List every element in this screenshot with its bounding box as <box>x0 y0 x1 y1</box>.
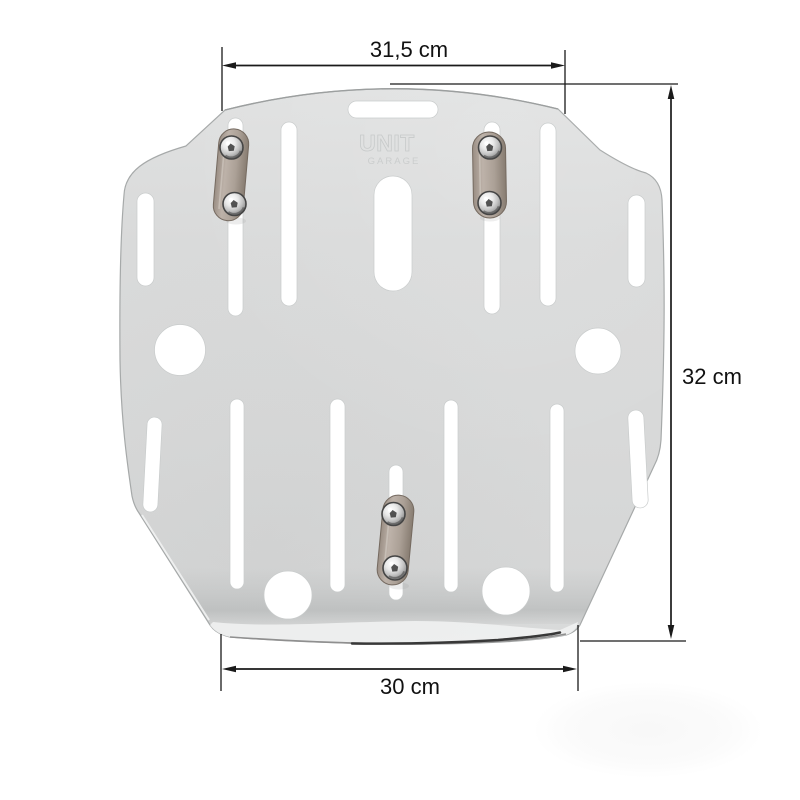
svg-text:31,5 cm: 31,5 cm <box>370 37 448 62</box>
svg-text:UNIT: UNIT <box>359 130 415 156</box>
svg-text:GARAGE: GARAGE <box>368 156 421 167</box>
svg-text:30 cm: 30 cm <box>380 674 440 699</box>
svg-text:32 cm: 32 cm <box>682 364 742 389</box>
